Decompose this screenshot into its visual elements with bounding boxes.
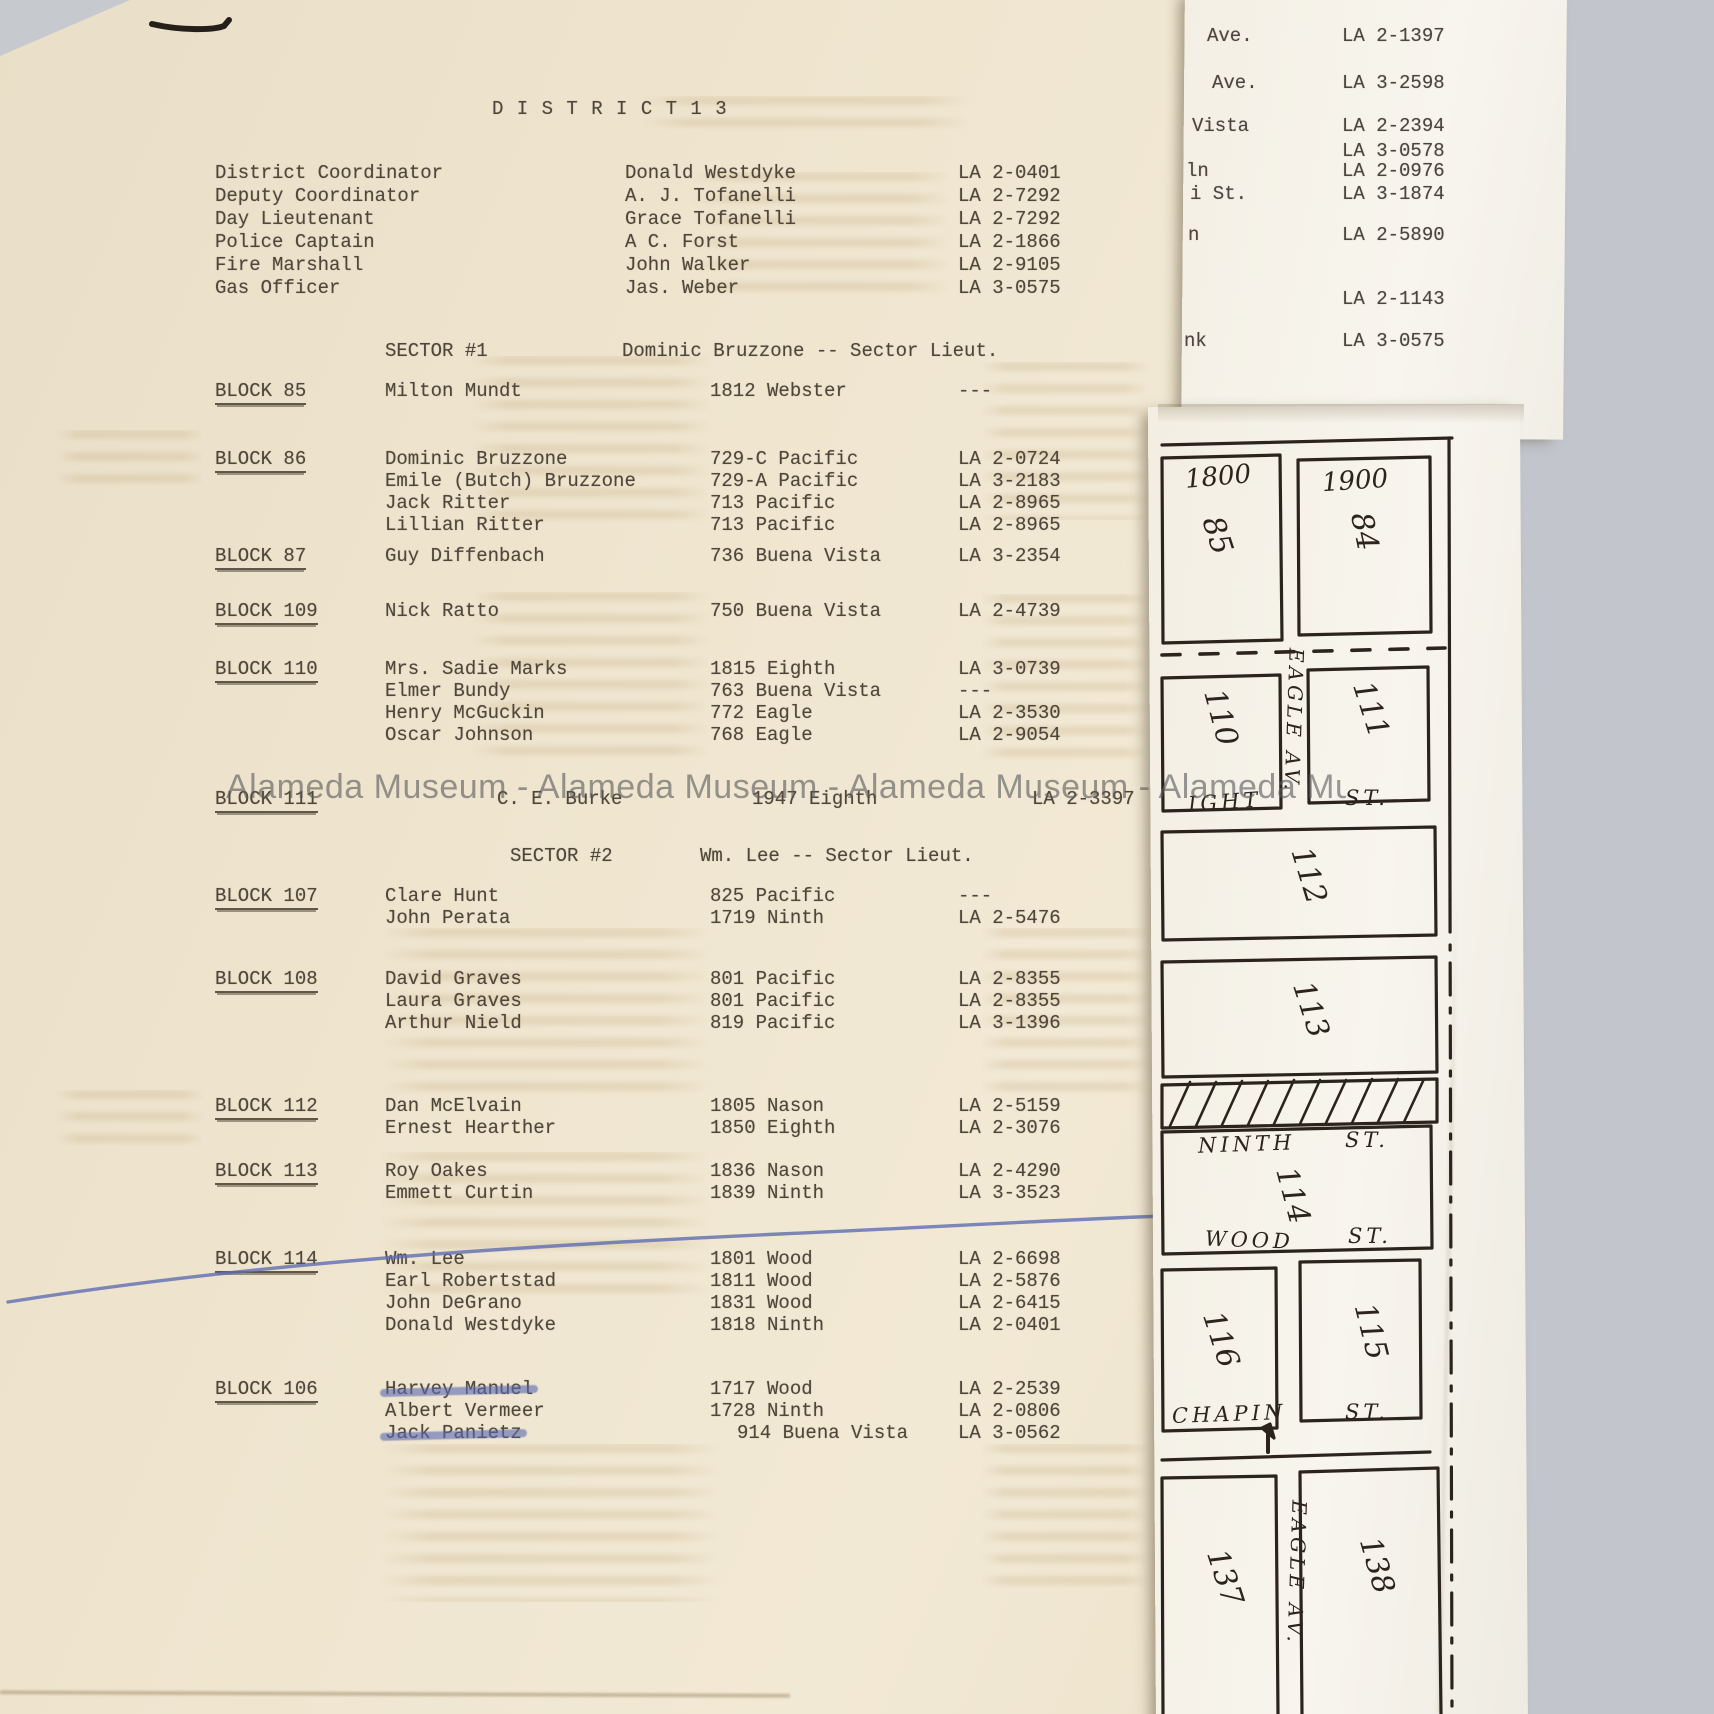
map-street-st: ST. bbox=[1345, 1400, 1389, 1424]
phone-row-label: nk bbox=[1184, 330, 1207, 352]
map-street-st: ST. bbox=[1348, 1224, 1392, 1248]
phone-row-label: n bbox=[1188, 224, 1199, 246]
museum-watermark: Alameda Museum - Alameda Museum - Alamed… bbox=[226, 768, 1346, 807]
map-top-border bbox=[1162, 438, 1452, 445]
phone-row-number: LA 3-0575 bbox=[1342, 330, 1445, 352]
phone-row-label: ln bbox=[1186, 160, 1209, 182]
map-street-st: ST. bbox=[1345, 786, 1389, 810]
map-block-number: 84 bbox=[1343, 509, 1385, 554]
block-map-drawing bbox=[0, 0, 1714, 1714]
map-street-st: ST. bbox=[1345, 1128, 1389, 1152]
phone-row-number: LA 2-1397 bbox=[1342, 25, 1445, 47]
phone-row-number: LA 2-2394 bbox=[1342, 115, 1445, 137]
map-hatch-lines bbox=[1170, 1079, 1424, 1126]
map-right-border-dashed bbox=[1450, 900, 1452, 1714]
phone-row-number: LA 3-0578 bbox=[1342, 140, 1445, 162]
phone-row-number: LA 2-0976 bbox=[1342, 160, 1445, 182]
map-house-number: 1900 bbox=[1321, 464, 1389, 499]
phone-row-number: LA 3-1874 bbox=[1342, 183, 1445, 205]
map-house-number: 1800 bbox=[1184, 459, 1253, 495]
phone-row-label: Ave. bbox=[1212, 72, 1258, 94]
map-right-border bbox=[1449, 438, 1450, 900]
phone-row-label: Ave. bbox=[1207, 25, 1253, 47]
scanned-document: D I S T R I C T 1 3 District Coordinator… bbox=[0, 0, 1714, 1714]
phone-row-label: i St. bbox=[1190, 183, 1247, 205]
map-street-wood: WOOD bbox=[1205, 1226, 1295, 1253]
map-street-line bbox=[1162, 1452, 1430, 1460]
phone-row-label: Vista bbox=[1192, 115, 1249, 137]
map-street-ninth: NINTH bbox=[1198, 1130, 1296, 1157]
phone-row-number: LA 2-1143 bbox=[1342, 288, 1445, 310]
phone-row-number: LA 2-5890 bbox=[1342, 224, 1445, 246]
map-street-chapin: CHAPIN bbox=[1172, 1400, 1287, 1428]
phone-row-number: LA 3-2598 bbox=[1342, 72, 1445, 94]
